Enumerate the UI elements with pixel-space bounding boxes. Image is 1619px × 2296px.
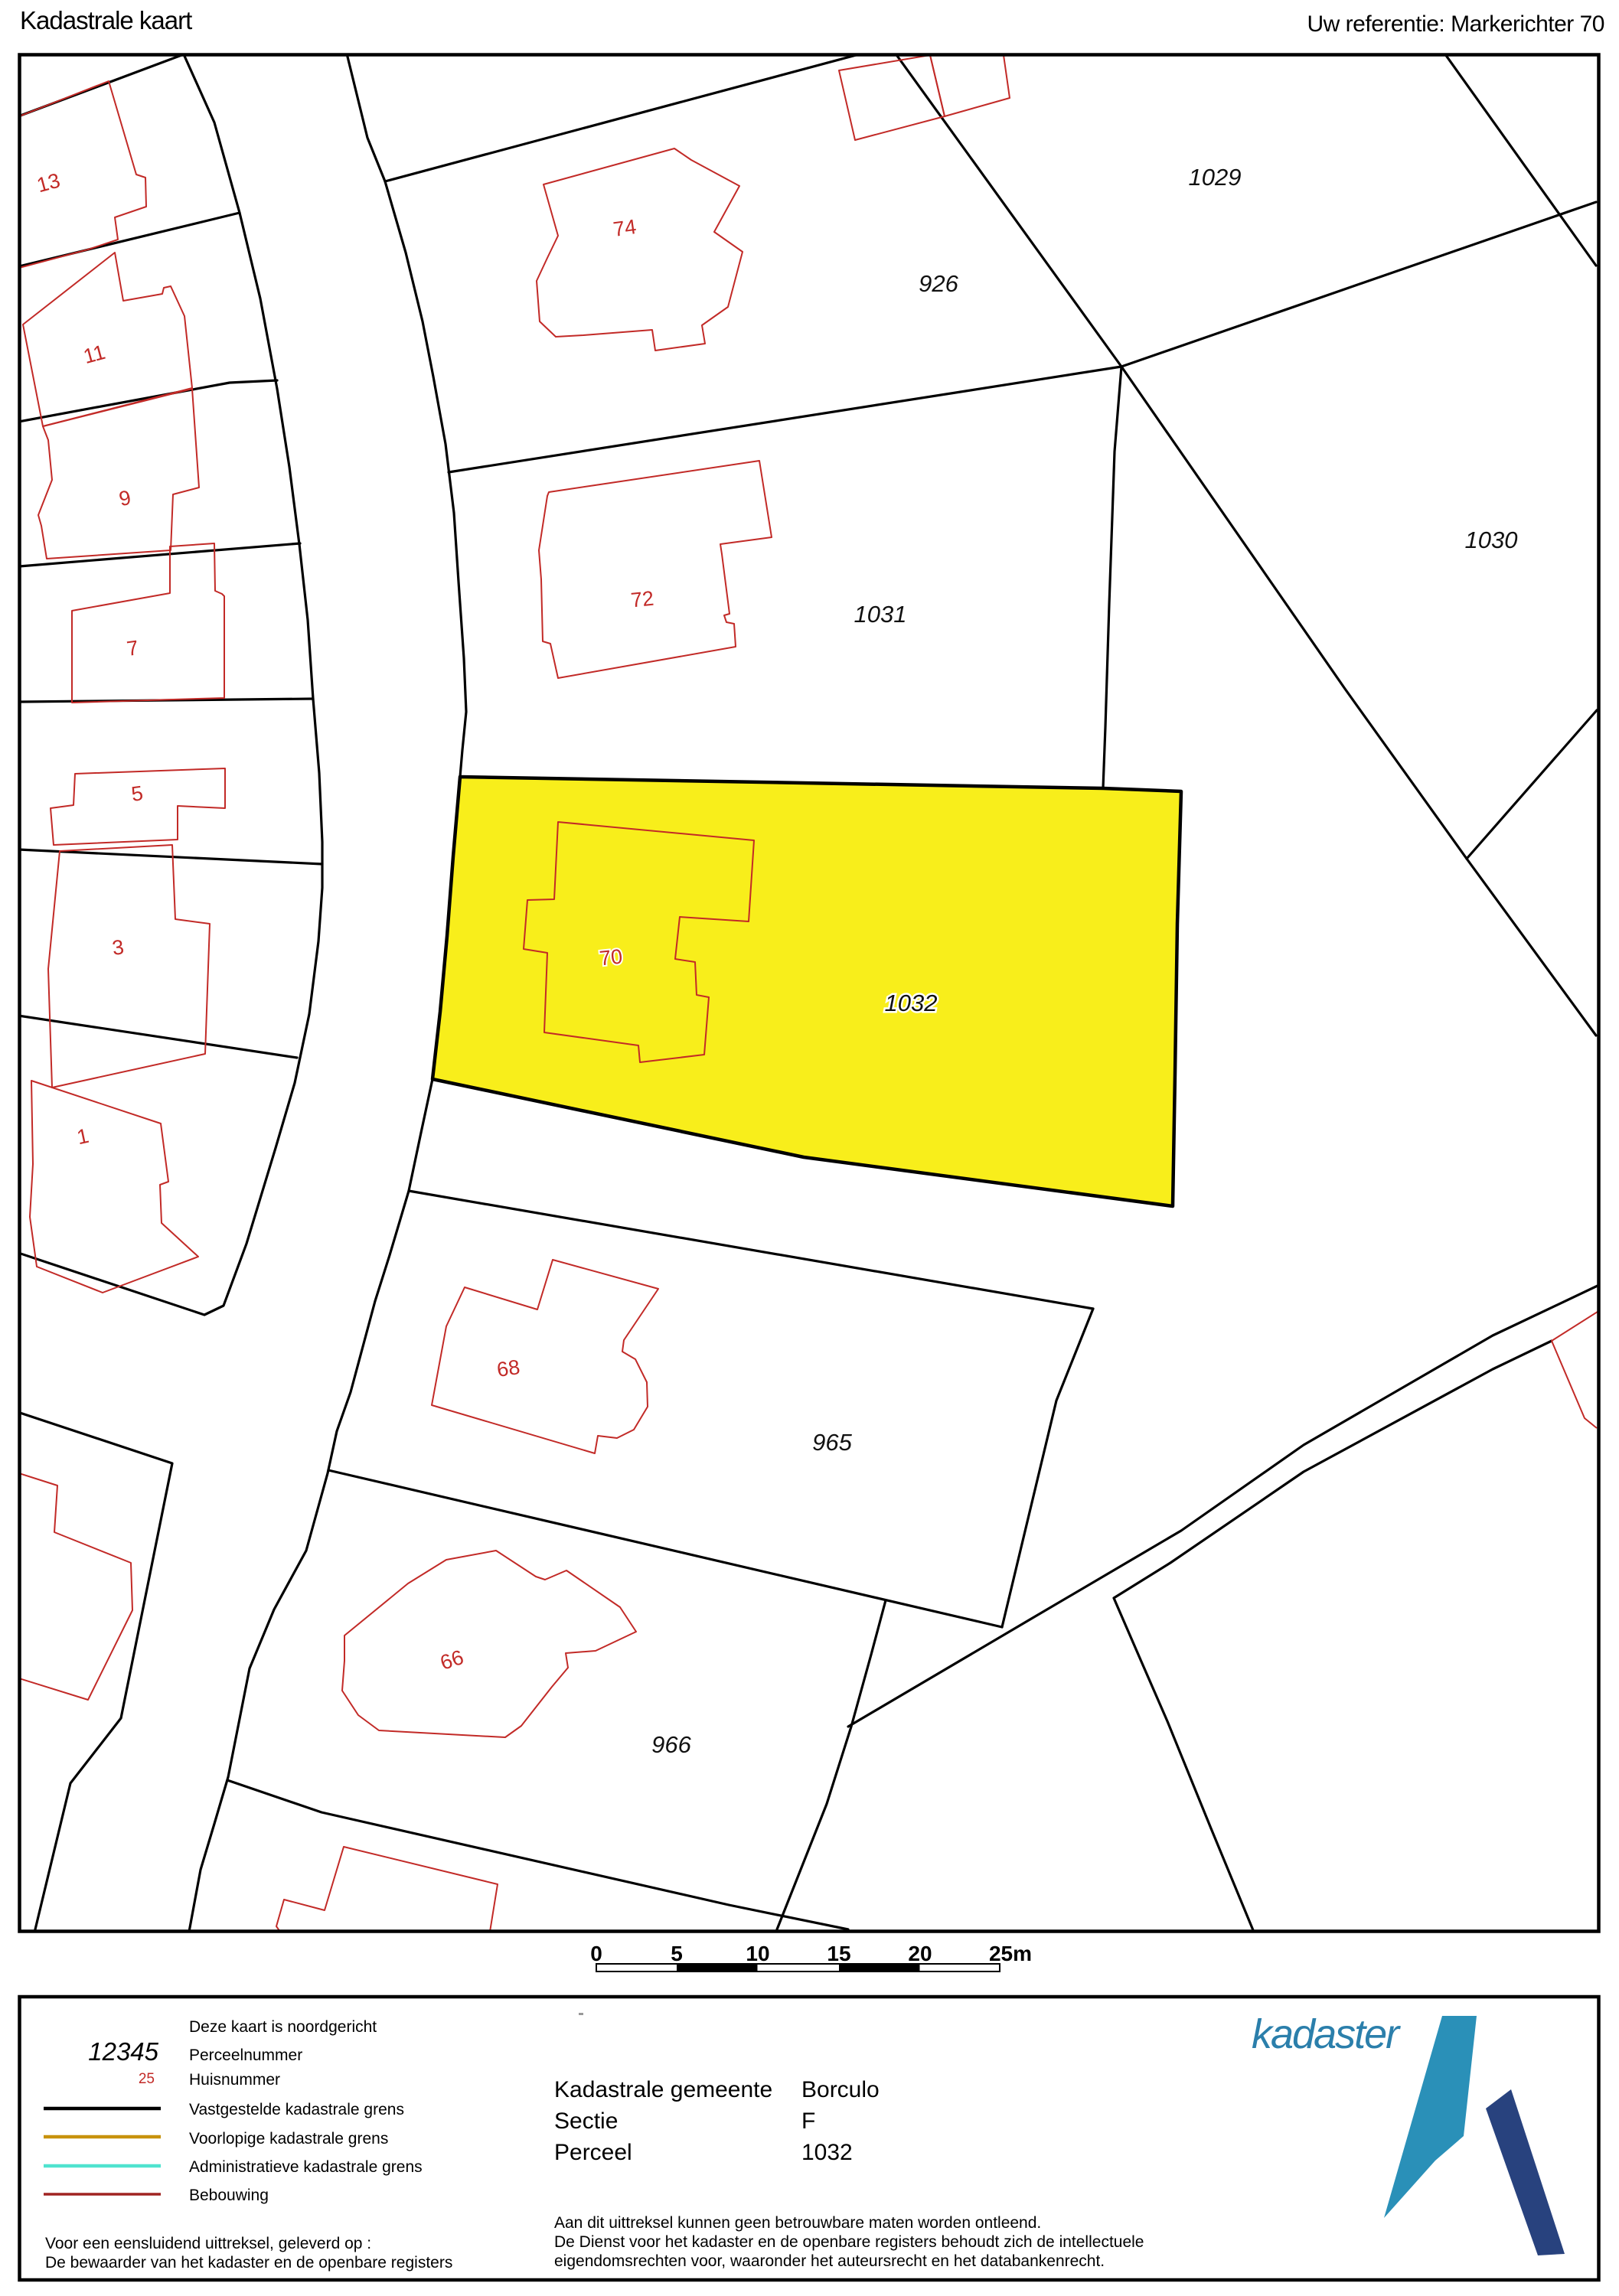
svg-text:Aan dit uittreksel kunnen geen: Aan dit uittreksel kunnen geen betrouwba…: [554, 2214, 1041, 2232]
svg-text:eigendomsrechten voor, waarond: eigendomsrechten voor, waaronder het aut…: [554, 2252, 1105, 2270]
svg-text:Voorlopige kadastrale grens: Voorlopige kadastrale grens: [189, 2130, 388, 2148]
svg-text:5: 5: [671, 1942, 683, 1965]
svg-text:965: 965: [812, 1429, 852, 1456]
svg-text:Kadastrale gemeente: Kadastrale gemeente: [554, 2077, 772, 2102]
svg-text:Kadastrale kaart: Kadastrale kaart: [20, 6, 192, 34]
svg-text:1030: 1030: [1465, 527, 1518, 553]
svg-text:12345: 12345: [88, 2037, 158, 2066]
svg-text:Vastgestelde kadastrale grens: Vastgestelde kadastrale grens: [189, 2101, 404, 2118]
svg-text:926: 926: [919, 270, 958, 297]
svg-text:1032: 1032: [801, 2140, 853, 2165]
svg-text:F: F: [801, 2108, 815, 2134]
svg-text:kadaster: kadaster: [1252, 2011, 1401, 2057]
svg-text:Bebouwing: Bebouwing: [189, 2187, 269, 2204]
svg-text:1032: 1032: [885, 990, 938, 1016]
svg-text:De Dienst voor het kadaster en: De Dienst voor het kadaster en de openba…: [554, 2233, 1144, 2251]
svg-text:966: 966: [651, 1731, 691, 1758]
svg-text:Uw referentie: Markerichter 70: Uw referentie: Markerichter 70: [1307, 11, 1604, 37]
svg-text:Voor een eensluidend uittrekse: Voor een eensluidend uittreksel, gelever…: [45, 2235, 371, 2252]
svg-text:0: 0: [590, 1942, 602, 1965]
svg-text:1029: 1029: [1189, 164, 1242, 191]
svg-text:72: 72: [630, 587, 655, 612]
svg-text:Borculo: Borculo: [801, 2077, 880, 2102]
svg-text:Perceelnummer: Perceelnummer: [189, 2047, 302, 2064]
svg-text:20: 20: [908, 1942, 932, 1965]
svg-text:1031: 1031: [854, 601, 907, 628]
svg-text:74: 74: [612, 215, 638, 241]
svg-text:Huisnummer: Huisnummer: [189, 2071, 280, 2089]
svg-text:10: 10: [746, 1942, 769, 1965]
svg-text:70: 70: [599, 945, 624, 970]
svg-text:68: 68: [495, 1355, 521, 1381]
svg-text:25: 25: [139, 2071, 155, 2087]
svg-text:De bewaarder van het kadaster: De bewaarder van het kadaster en de open…: [45, 2254, 452, 2272]
svg-text:Sectie: Sectie: [554, 2108, 618, 2134]
svg-text:Administratieve kadastrale gre: Administratieve kadastrale grens: [189, 2158, 423, 2176]
svg-text:15: 15: [827, 1942, 850, 1965]
svg-text:Deze kaart is noordgericht: Deze kaart is noordgericht: [189, 2018, 377, 2036]
svg-text:25m: 25m: [989, 1942, 1032, 1965]
svg-text:Perceel: Perceel: [554, 2140, 632, 2165]
